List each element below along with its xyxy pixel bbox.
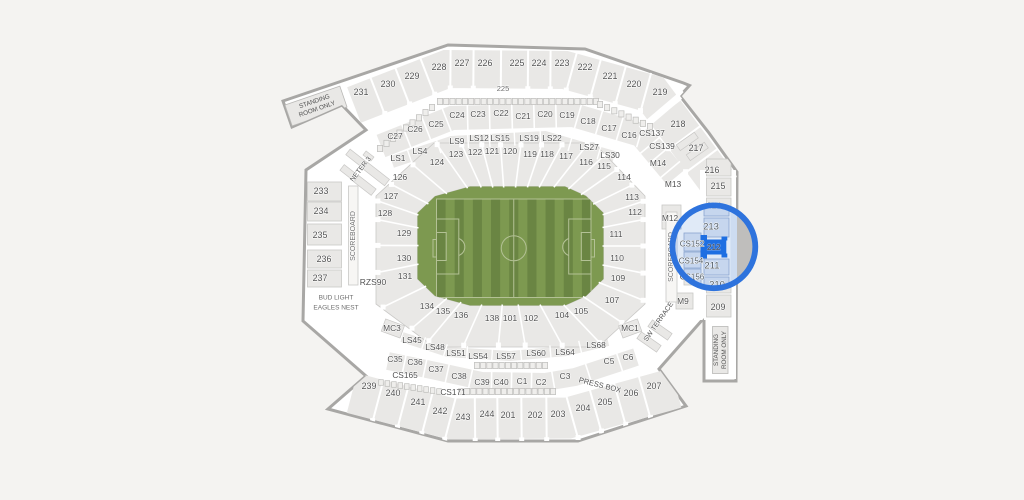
- svg-text:STANDING: STANDING: [713, 334, 720, 366]
- svg-text:C22: C22: [493, 108, 509, 118]
- svg-text:241: 241: [411, 397, 426, 407]
- svg-text:C37: C37: [428, 364, 444, 374]
- svg-text:226: 226: [478, 58, 493, 68]
- svg-text:114: 114: [617, 172, 631, 182]
- svg-text:CS165: CS165: [392, 370, 418, 380]
- svg-text:231: 231: [354, 87, 369, 97]
- svg-text:M14: M14: [650, 158, 667, 168]
- svg-text:CS137: CS137: [639, 128, 665, 138]
- svg-text:124: 124: [430, 157, 445, 167]
- svg-text:220: 220: [627, 79, 642, 89]
- svg-text:211: 211: [704, 261, 719, 272]
- svg-text:111: 111: [609, 229, 622, 239]
- svg-text:224: 224: [532, 58, 547, 68]
- svg-text:CS154: CS154: [679, 257, 704, 266]
- svg-text:C26: C26: [407, 124, 423, 134]
- svg-text:ROOM ONLY: ROOM ONLY: [721, 330, 728, 369]
- svg-text:130: 130: [397, 253, 412, 263]
- svg-text:LS9: LS9: [450, 136, 465, 146]
- svg-text:C36: C36: [407, 357, 423, 367]
- svg-text:110: 110: [610, 253, 624, 263]
- svg-text:C35: C35: [387, 354, 403, 364]
- svg-text:LS48: LS48: [425, 342, 445, 352]
- svg-text:201: 201: [501, 410, 516, 420]
- svg-text:104: 104: [555, 310, 570, 320]
- svg-text:C38: C38: [451, 371, 467, 381]
- svg-text:MC1: MC1: [621, 323, 639, 333]
- svg-text:BUD LIGHT: BUD LIGHT: [319, 295, 354, 302]
- svg-text:225: 225: [497, 84, 510, 93]
- svg-text:116: 116: [579, 157, 593, 167]
- svg-text:C19: C19: [559, 110, 575, 120]
- svg-text:LS12: LS12: [469, 133, 489, 143]
- svg-text:LS54: LS54: [468, 351, 488, 361]
- svg-text:C6: C6: [623, 352, 634, 362]
- svg-text:M9: M9: [677, 296, 689, 306]
- svg-text:115: 115: [597, 161, 611, 171]
- svg-text:CS152: CS152: [680, 240, 705, 249]
- svg-text:202: 202: [528, 410, 543, 420]
- svg-text:229: 229: [405, 71, 420, 81]
- svg-text:243: 243: [456, 412, 471, 422]
- svg-text:203: 203: [551, 409, 566, 419]
- svg-text:MC3: MC3: [383, 323, 401, 333]
- svg-text:237: 237: [313, 273, 328, 283]
- svg-text:127: 127: [384, 191, 399, 201]
- svg-text:135: 135: [436, 306, 451, 316]
- svg-text:C25: C25: [428, 119, 444, 129]
- svg-text:EAGLES NEST: EAGLES NEST: [313, 305, 358, 312]
- svg-text:206: 206: [624, 388, 639, 398]
- svg-text:117: 117: [559, 151, 573, 161]
- svg-text:C27: C27: [387, 131, 403, 141]
- svg-text:240: 240: [386, 388, 401, 398]
- svg-text:131: 131: [398, 271, 413, 281]
- svg-text:LS57: LS57: [496, 351, 516, 361]
- svg-text:234: 234: [314, 206, 329, 216]
- svg-text:216: 216: [705, 165, 720, 175]
- svg-text:101: 101: [503, 313, 518, 323]
- svg-text:122: 122: [468, 147, 483, 157]
- svg-text:C20: C20: [537, 109, 553, 119]
- svg-text:228: 228: [432, 62, 447, 72]
- svg-text:C1: C1: [517, 376, 528, 386]
- svg-text:209: 209: [711, 302, 726, 312]
- svg-text:138: 138: [485, 313, 500, 323]
- svg-text:233: 233: [314, 186, 329, 196]
- svg-text:C39: C39: [474, 377, 490, 387]
- svg-text:C24: C24: [449, 110, 465, 120]
- svg-text:134: 134: [420, 301, 435, 311]
- svg-text:C3: C3: [560, 371, 571, 381]
- svg-text:C40: C40: [493, 377, 509, 387]
- svg-text:225: 225: [510, 58, 525, 68]
- svg-text:LS51: LS51: [446, 348, 466, 358]
- svg-text:239: 239: [362, 381, 377, 391]
- svg-text:213: 213: [703, 222, 719, 233]
- svg-text:LS68: LS68: [586, 340, 606, 350]
- svg-text:M12: M12: [662, 213, 679, 223]
- svg-text:LS60: LS60: [526, 348, 546, 358]
- svg-text:LS4: LS4: [413, 146, 428, 156]
- svg-text:C23: C23: [470, 109, 486, 119]
- svg-text:204: 204: [576, 403, 591, 413]
- svg-text:LS15: LS15: [490, 133, 510, 143]
- svg-text:107: 107: [605, 295, 620, 305]
- svg-text:205: 205: [598, 397, 613, 407]
- svg-text:105: 105: [574, 306, 589, 316]
- svg-text:C2: C2: [536, 377, 547, 387]
- svg-text:221: 221: [603, 71, 618, 81]
- svg-text:244: 244: [480, 409, 495, 419]
- svg-text:235: 235: [313, 230, 328, 240]
- svg-text:C18: C18: [580, 116, 596, 126]
- svg-text:119: 119: [523, 149, 537, 159]
- svg-text:M13: M13: [665, 179, 682, 189]
- svg-text:223: 223: [555, 58, 570, 68]
- svg-text:121: 121: [485, 146, 500, 156]
- svg-text:LS27: LS27: [579, 142, 599, 152]
- svg-text:LS64: LS64: [555, 347, 575, 357]
- svg-text:217: 217: [689, 143, 704, 153]
- svg-text:120: 120: [503, 146, 518, 156]
- svg-text:227: 227: [455, 58, 470, 68]
- svg-text:CS139: CS139: [649, 141, 675, 151]
- svg-text:LS1: LS1: [391, 153, 406, 163]
- svg-text:112: 112: [628, 207, 642, 217]
- svg-text:113: 113: [625, 192, 639, 202]
- svg-text:218: 218: [671, 119, 686, 129]
- svg-text:C16: C16: [621, 130, 637, 140]
- svg-text:RZS90: RZS90: [360, 277, 387, 287]
- svg-text:219: 219: [653, 87, 668, 97]
- svg-text:236: 236: [317, 254, 332, 264]
- svg-text:C21: C21: [515, 111, 531, 121]
- svg-text:LS22: LS22: [542, 133, 562, 143]
- svg-text:SCOREBOARD: SCOREBOARD: [350, 211, 357, 261]
- svg-text:118: 118: [540, 149, 554, 159]
- svg-text:129: 129: [397, 228, 412, 238]
- svg-text:C17: C17: [601, 123, 617, 133]
- svg-text:212: 212: [707, 243, 721, 252]
- svg-text:242: 242: [433, 406, 448, 416]
- svg-text:215: 215: [711, 181, 726, 191]
- svg-text:LS19: LS19: [519, 133, 539, 143]
- svg-text:123: 123: [449, 149, 464, 159]
- svg-text:LS30: LS30: [600, 150, 620, 160]
- svg-text:LS45: LS45: [402, 335, 422, 345]
- svg-text:222: 222: [578, 62, 593, 72]
- svg-text:136: 136: [454, 310, 469, 320]
- svg-text:207: 207: [647, 381, 662, 391]
- svg-text:102: 102: [524, 313, 539, 323]
- svg-text:CS171: CS171: [440, 387, 466, 397]
- svg-text:126: 126: [393, 172, 408, 182]
- svg-text:C5: C5: [604, 356, 615, 366]
- svg-text:128: 128: [378, 208, 393, 218]
- svg-text:109: 109: [611, 273, 626, 283]
- svg-text:230: 230: [381, 79, 396, 89]
